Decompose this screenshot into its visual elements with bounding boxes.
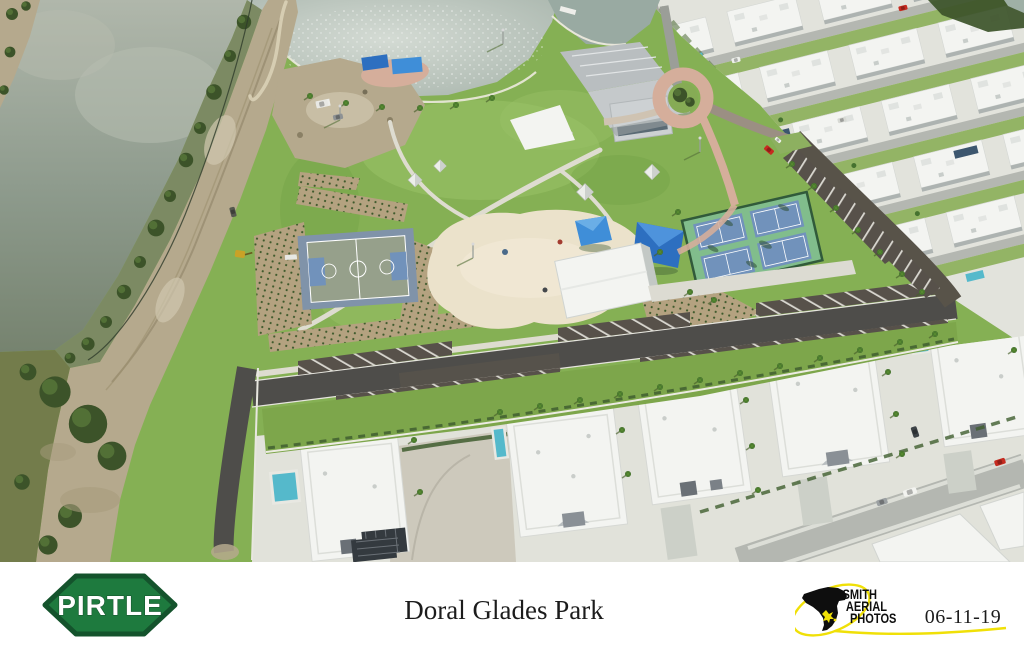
florida-silhouette-icon bbox=[802, 587, 847, 631]
photo-date: 06-11-19 bbox=[925, 606, 1002, 628]
house bbox=[506, 407, 628, 537]
aerial-photo bbox=[0, 0, 1024, 562]
caption-footer: PIRTLE Doral Glades Park SMITH AERIAL PH… bbox=[0, 562, 1024, 655]
yellow-underline bbox=[835, 628, 1006, 634]
page: PIRTLE Doral Glades Park SMITH AERIAL PH… bbox=[0, 0, 1024, 655]
smith-line-3: PHOTOS bbox=[850, 611, 896, 626]
smith-aerial-photos-logo: SMITH AERIAL PHOTOS 06-11-19 bbox=[795, 562, 1020, 655]
basketball-court bbox=[284, 228, 419, 311]
